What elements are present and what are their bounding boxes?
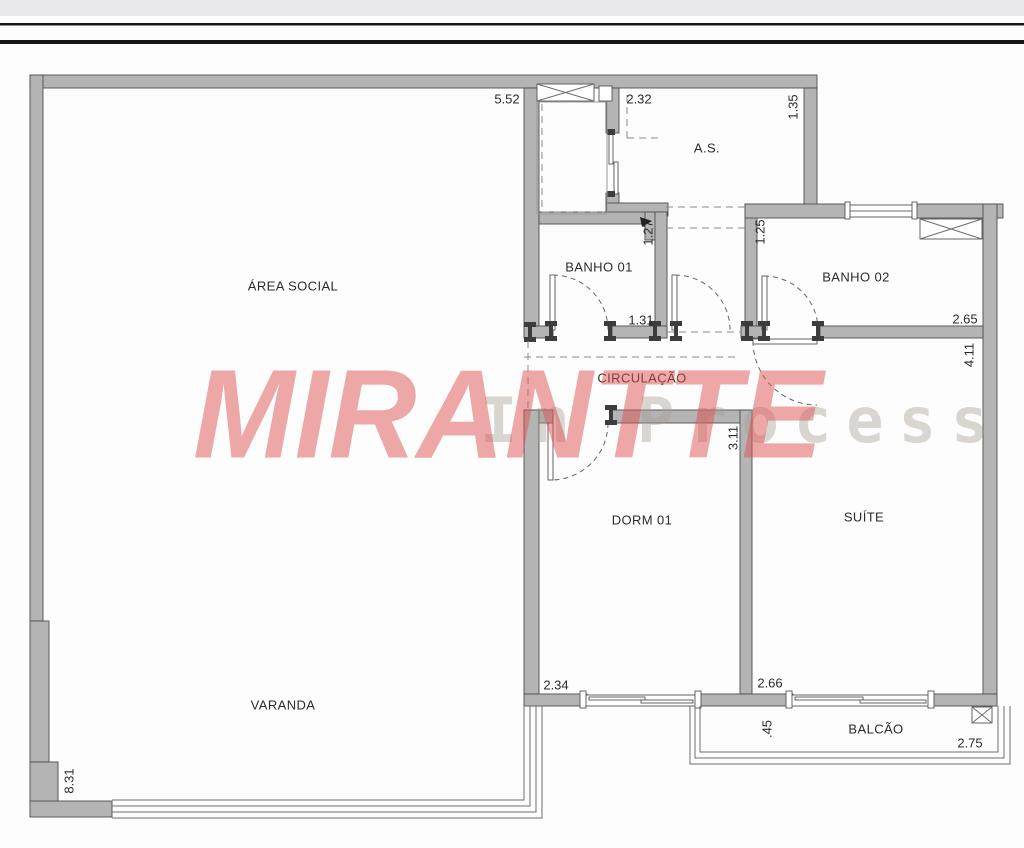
dimension-2-66: 2.66 (757, 675, 782, 690)
wall-segment (804, 88, 817, 207)
entry-duct-icon (599, 86, 612, 101)
dimension-8-31: 8.31 (61, 768, 76, 793)
banho02-window-icon (845, 202, 917, 219)
balcao-shaft-icon (972, 707, 992, 723)
entry-closet-outline (537, 102, 607, 214)
dorm01-window-icon (580, 691, 701, 708)
room-label-dorm-01: DORM 01 (612, 512, 673, 527)
suite-window-icon (786, 691, 934, 708)
dimension-5-52: 5.52 (494, 91, 519, 106)
room-label-banho-01: BANHO 01 (565, 259, 633, 274)
wall-segment (30, 801, 112, 817)
varanda-railing (112, 706, 542, 818)
wall-segment (697, 694, 793, 706)
floor-plan-page: ÁREA SOCIAL A.S. BANHO 01 BANHO 02 CIRCU… (0, 0, 1024, 848)
banho02-shaft-icon (920, 219, 982, 239)
entry-shaft-icon (537, 84, 594, 101)
wall-segment (30, 75, 817, 88)
dimension-1-35: 1.35 (785, 94, 800, 119)
wall-segment (930, 694, 997, 706)
banho02-door-icon (762, 276, 818, 330)
dimension-1-31: 1.31 (628, 312, 653, 327)
banho01-door-icon (550, 275, 608, 330)
dimension-2-65: 2.65 (952, 311, 977, 326)
wall-segment (30, 762, 58, 806)
header-band (0, 0, 1024, 16)
room-label-as: A.S. (694, 140, 720, 155)
header-rule-thick (0, 40, 1024, 44)
room-label-balcao: BALCÃO (848, 721, 903, 736)
room-label-varanda: VARANDA (251, 697, 316, 712)
wall-segment (820, 326, 983, 338)
wall-segment (655, 212, 667, 338)
dimension-2-34: 2.34 (543, 677, 568, 692)
dimension-0-45: .45 (759, 720, 774, 738)
as-pocket-door-icon (607, 129, 618, 197)
wall-segment (30, 621, 49, 762)
room-label-suite: SUÍTE (844, 509, 884, 524)
watermark: In Process MIRANTTE (193, 343, 1003, 484)
dimension-4-11: 4.11 (961, 343, 976, 367)
jamb-icon (670, 321, 682, 341)
wall-segment (745, 204, 850, 218)
dimension-2-32: 2.32 (626, 91, 651, 106)
room-label-area-social: ÁREA SOCIAL (248, 278, 338, 293)
header-rule-thin (0, 23, 1024, 26)
room-label-banho-02: BANHO 02 (822, 269, 890, 284)
floor-plan-canvas: ÁREA SOCIAL A.S. BANHO 01 BANHO 02 CIRCU… (0, 0, 1024, 848)
dimension-2-75: 2.75 (957, 735, 982, 750)
watermark-title: MIRANTTE (193, 343, 827, 484)
dimension-1-27: 1.27 (640, 220, 655, 245)
wall-segment (524, 694, 587, 706)
wall-segment (30, 75, 43, 621)
dimension-1-25: 1.25 (752, 219, 767, 244)
